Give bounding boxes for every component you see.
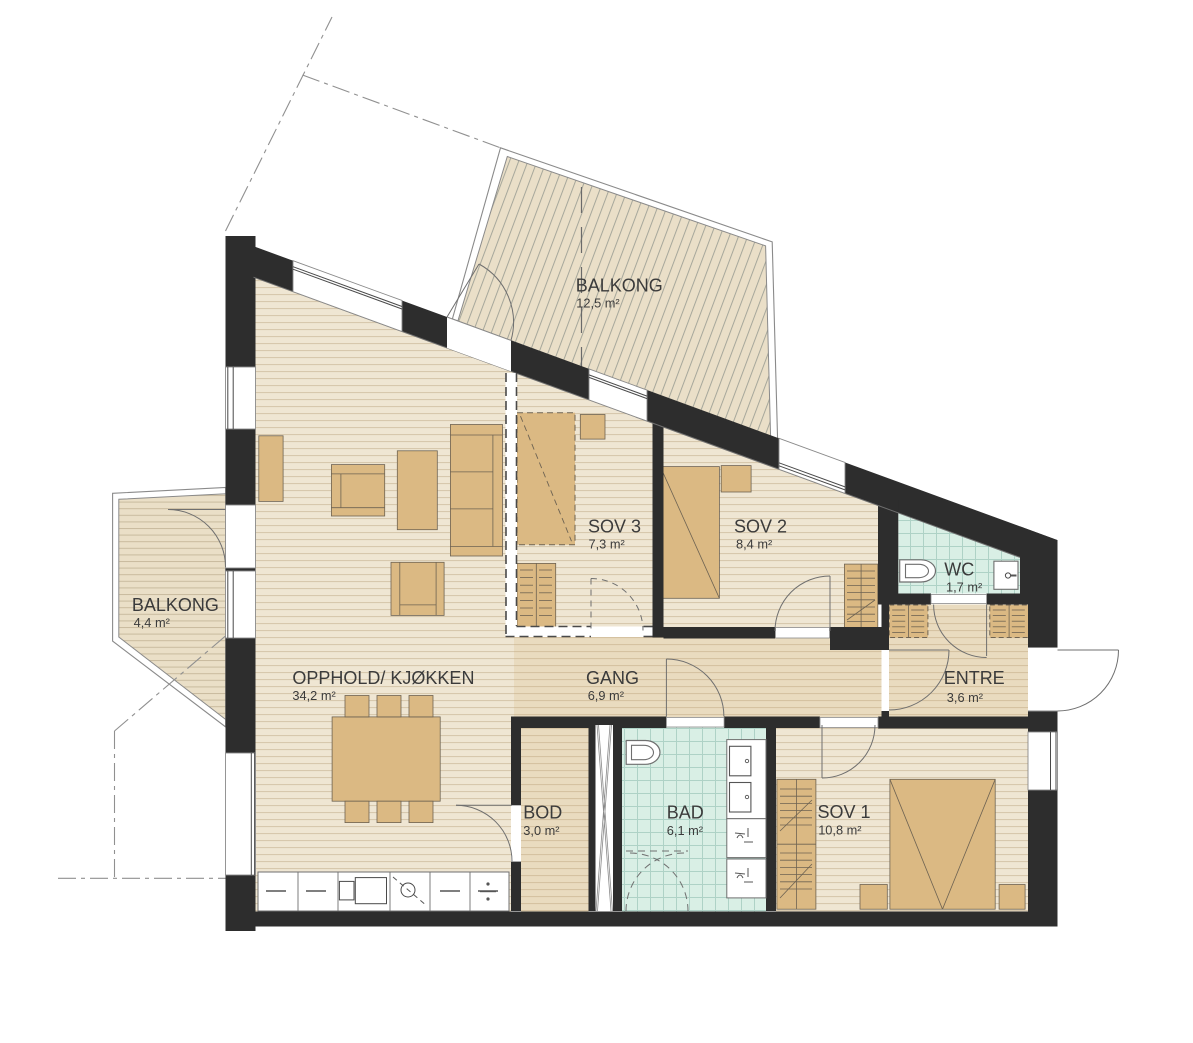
svg-text:1,7 m²: 1,7 m² xyxy=(946,580,983,595)
svg-text:GANG: GANG xyxy=(586,668,639,688)
svg-text:34,2 m²: 34,2 m² xyxy=(292,688,336,703)
svg-text:OPPHOLD/ KJØKKEN: OPPHOLD/ KJØKKEN xyxy=(292,668,474,688)
svg-text:3,0 m²: 3,0 m² xyxy=(523,823,560,838)
svg-text:BALKONG: BALKONG xyxy=(576,275,663,295)
svg-text:SOV 1: SOV 1 xyxy=(818,802,871,822)
svg-text:BAD: BAD xyxy=(667,803,704,823)
svg-text:BALKONG: BALKONG xyxy=(132,595,219,615)
svg-text:6,9 m²: 6,9 m² xyxy=(588,688,625,703)
svg-text:10,8 m²: 10,8 m² xyxy=(818,822,862,837)
svg-text:3,6 m²: 3,6 m² xyxy=(947,690,984,705)
svg-text:BOD: BOD xyxy=(523,803,562,823)
svg-text:ENTRE: ENTRE xyxy=(944,668,1005,688)
svg-text:7,3 m²: 7,3 m² xyxy=(589,537,626,552)
svg-text:8,4 m²: 8,4 m² xyxy=(736,537,773,552)
svg-text:6,1 m²: 6,1 m² xyxy=(667,823,704,838)
svg-text:SOV 2: SOV 2 xyxy=(734,516,787,536)
svg-text:4,4 m²: 4,4 m² xyxy=(134,615,171,630)
svg-text:WC: WC xyxy=(944,560,974,580)
svg-text:12,5 m²: 12,5 m² xyxy=(576,296,620,311)
svg-text:SOV 3: SOV 3 xyxy=(588,516,641,536)
